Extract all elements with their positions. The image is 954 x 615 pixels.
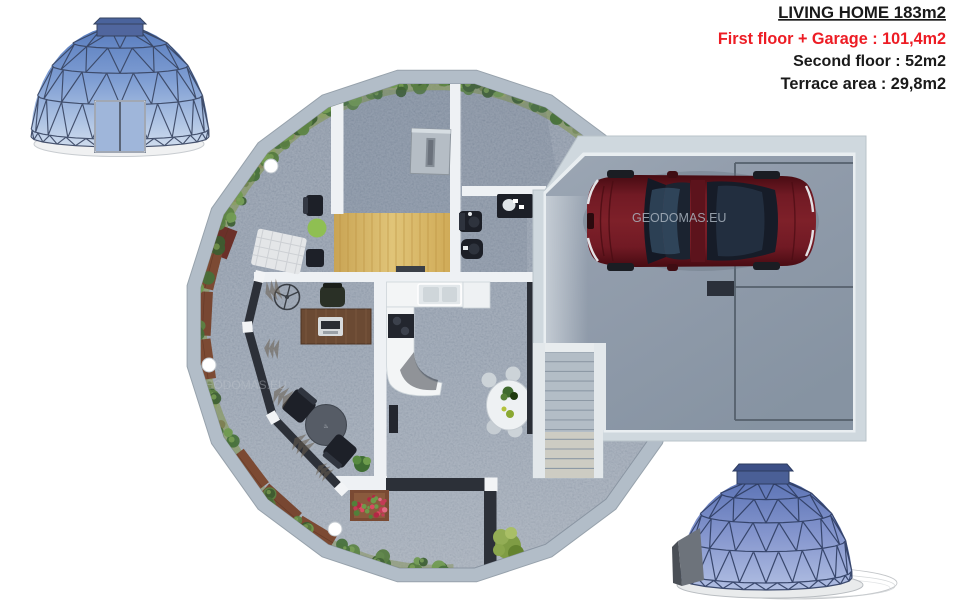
- svg-text:Second floor : 52m2: Second floor : 52m2: [793, 53, 946, 70]
- svg-text:Terrace area : 29,8m2: Terrace area : 29,8m2: [781, 75, 946, 93]
- svg-text:♨: ♨: [323, 423, 328, 430]
- svg-text:GEODOMAS.EU: GEODOMAS.EU: [196, 378, 287, 392]
- svg-text:GEODOMAS.EU: GEODOMAS.EU: [632, 211, 726, 225]
- svg-text:First floor + Garage : 101,4m2: First floor + Garage : 101,4m2: [718, 30, 946, 48]
- svg-text:LIVING HOME 183m2: LIVING HOME 183m2: [778, 3, 946, 22]
